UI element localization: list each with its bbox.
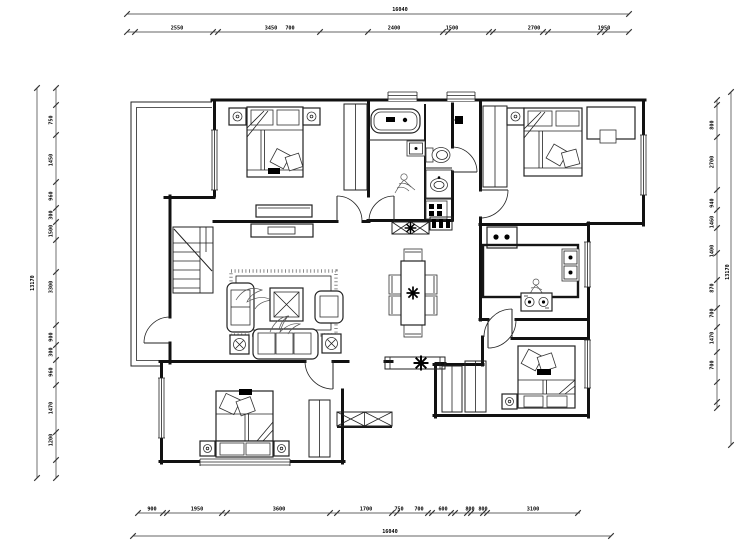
chair-icon <box>389 275 402 294</box>
dimension-label: 2700 <box>710 156 716 169</box>
dimension-label: 13170 <box>725 264 731 280</box>
nightstand-icon <box>303 108 320 125</box>
shoe-cabinet-icon <box>337 412 392 426</box>
dimension-label: 800 <box>710 120 716 129</box>
console-cabinet-icon <box>392 222 429 234</box>
dimension-label: 16040 <box>392 7 408 13</box>
dimension-label: 2550 <box>171 26 184 32</box>
window-icon <box>584 242 591 287</box>
dimension-label: 1950 <box>598 26 611 32</box>
sofa-icon <box>253 316 318 359</box>
floor-plan-canvas: 1604025503450700240015002700195016040900… <box>0 0 740 548</box>
dimension-label: 1500 <box>49 225 55 238</box>
nightstand-icon <box>229 108 246 125</box>
entry <box>337 356 445 426</box>
dimension-label: 3300 <box>49 281 55 294</box>
nightstand-icon <box>507 108 524 125</box>
armchair-icon <box>315 291 343 323</box>
bed-bench-icon <box>216 441 273 457</box>
floor-plan-page: 1604025503450700240015002700195016040900… <box>0 0 740 548</box>
wardrobe-icon <box>442 366 462 412</box>
wardrobe-icon <box>309 400 330 457</box>
bathtub-icon <box>371 109 420 133</box>
dimension-label: 700 <box>710 308 716 317</box>
dimension-label: 16040 <box>382 529 398 535</box>
dimension-label: 700 <box>285 26 294 32</box>
desk-icon <box>587 107 635 143</box>
chair-icon <box>404 324 422 337</box>
wardrobe-icon <box>465 361 486 412</box>
dimension-label: 800 <box>465 507 474 513</box>
door-swing-icon <box>480 190 508 218</box>
side-table-icon <box>230 335 249 354</box>
toilet-icon <box>426 148 450 163</box>
side-table-icon <box>322 334 341 353</box>
dimension-label: 3450 <box>265 26 278 32</box>
dimension-label: 1700 <box>360 507 373 513</box>
dimension-label: 2700 <box>528 26 541 32</box>
dimension-label: 1450 <box>49 154 55 167</box>
window-icon <box>158 378 165 438</box>
dimension-label: 1470 <box>710 332 716 345</box>
dimension-label: 900 <box>147 507 156 513</box>
dimension-label: 2400 <box>388 26 401 32</box>
bedroom-bottom-left <box>200 389 330 457</box>
dimension-label: 1460 <box>710 216 716 229</box>
nightstand-icon <box>502 394 517 409</box>
double-bed-icon <box>518 346 575 408</box>
door-swing-icon <box>337 196 362 221</box>
dimension-label: 700 <box>710 360 716 369</box>
window-icon <box>584 340 591 388</box>
plant-icon <box>405 222 417 234</box>
dimension-label: 1500 <box>446 26 459 32</box>
dimension-label: 1400 <box>710 245 716 258</box>
tv-cabinet-icon <box>251 224 313 237</box>
dimension-label: 750 <box>394 507 403 513</box>
bedroom-top-right <box>483 106 635 187</box>
window-icon <box>200 458 290 466</box>
dimension-label: 900 <box>49 332 55 341</box>
dining-area <box>389 249 437 337</box>
chair-icon <box>404 249 422 262</box>
dimension-label: 800 <box>478 507 487 513</box>
double-bed-icon <box>524 108 582 176</box>
dimension-label: 1950 <box>191 507 204 513</box>
person-figure-icon <box>395 174 415 193</box>
dimension-label: 300 <box>49 347 55 356</box>
door-swing-icon <box>452 147 477 172</box>
nightstand-icon <box>200 441 215 456</box>
window-icon <box>640 135 647 195</box>
stairs-icon <box>173 227 213 293</box>
tv-cabinet-icon <box>256 205 312 217</box>
living-room <box>227 224 343 359</box>
washbasin-icon <box>407 141 425 156</box>
dimension-label: 960 <box>49 191 55 200</box>
sink-icon <box>562 249 579 281</box>
door-swing-icon <box>369 196 394 221</box>
wardrobe-icon <box>483 106 507 187</box>
dimension-label: 700 <box>414 507 423 513</box>
bathroom <box>371 109 463 219</box>
dimension-label: 940 <box>710 198 716 207</box>
plant-icon <box>407 287 420 300</box>
dimension-label: 750 <box>49 115 55 124</box>
window-icon <box>388 91 417 101</box>
dimension-label: 1200 <box>49 434 55 447</box>
plant-icon <box>414 356 429 371</box>
door-swing-icon <box>305 361 333 389</box>
dimension-label: 1470 <box>49 402 55 415</box>
sofa-icon <box>227 283 271 332</box>
double-bed-icon <box>247 107 303 177</box>
dimension-label: 870 <box>710 283 716 292</box>
dimension-label: 3100 <box>527 507 540 513</box>
cooktop-icon <box>521 293 552 311</box>
dimension-label: 960 <box>49 367 55 376</box>
nightstand-icon <box>274 441 289 456</box>
dimension-label: 600 <box>438 507 447 513</box>
dimension-label: 300 <box>49 210 55 219</box>
double-bed-icon <box>216 389 273 441</box>
kitchen <box>483 227 579 311</box>
bedroom-top-left <box>229 104 367 217</box>
door-swing-icon <box>144 317 170 343</box>
dimension-annotations: 1604025503450700240015002700195016040900… <box>30 7 734 539</box>
window-icon <box>447 91 475 101</box>
bedroom-bottom-right <box>442 346 575 412</box>
washbasin-icon <box>426 170 452 198</box>
chair-icon <box>424 296 437 315</box>
chair-icon <box>424 275 437 294</box>
washer-icon <box>426 201 447 219</box>
chair-icon <box>389 296 402 315</box>
window-icon <box>211 130 218 190</box>
wardrobe-icon <box>344 104 367 190</box>
dimension-label: 3600 <box>273 507 286 513</box>
dimension-label: 13170 <box>30 275 36 291</box>
